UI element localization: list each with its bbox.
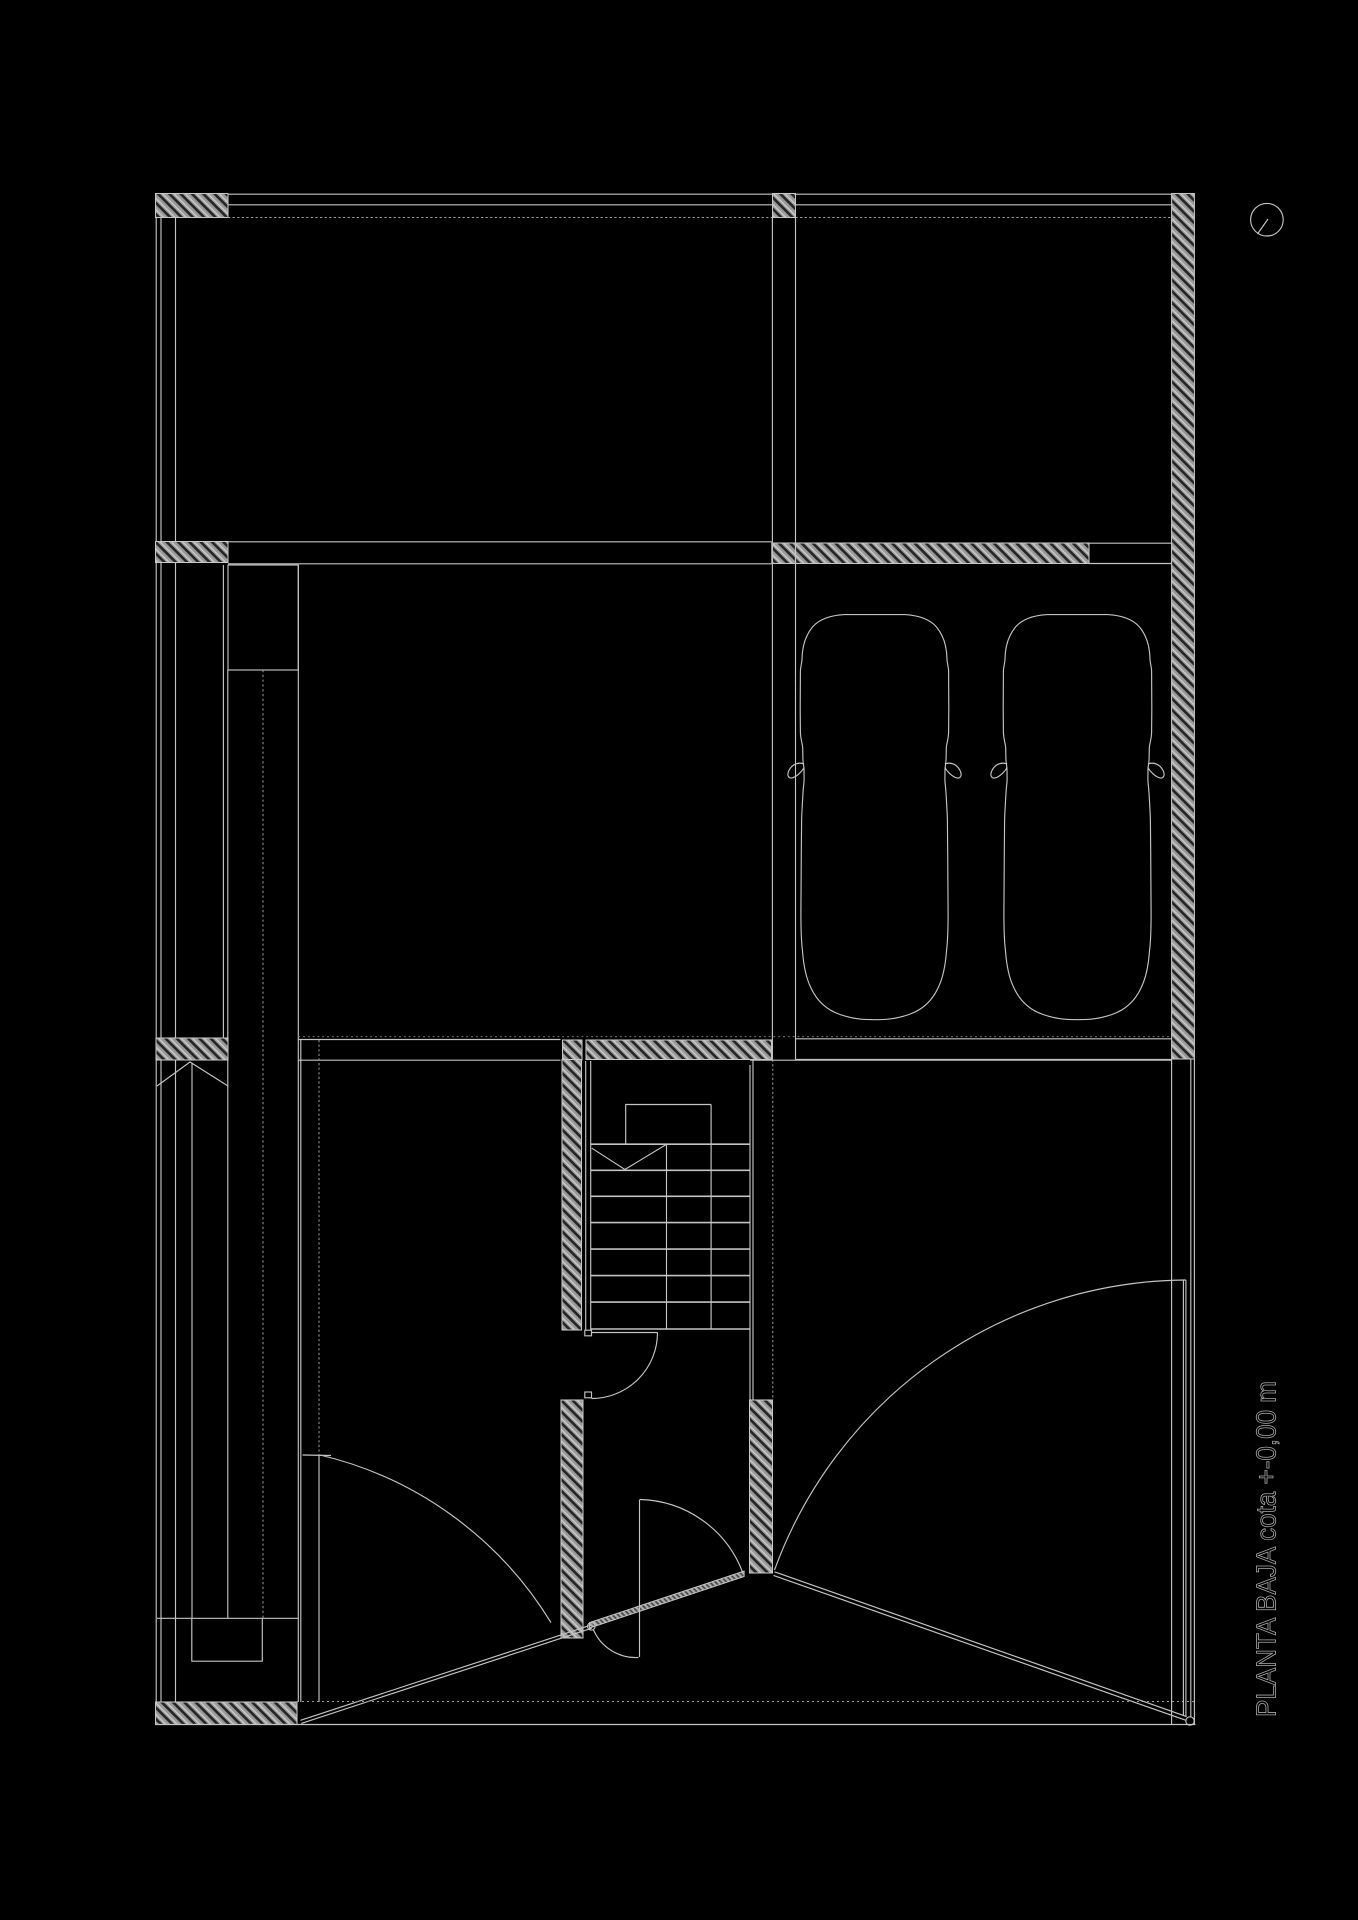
svg-text:PLANTA BAJA cota +-0,00 m: PLANTA BAJA cota +-0,00 m bbox=[1251, 1381, 1282, 1717]
